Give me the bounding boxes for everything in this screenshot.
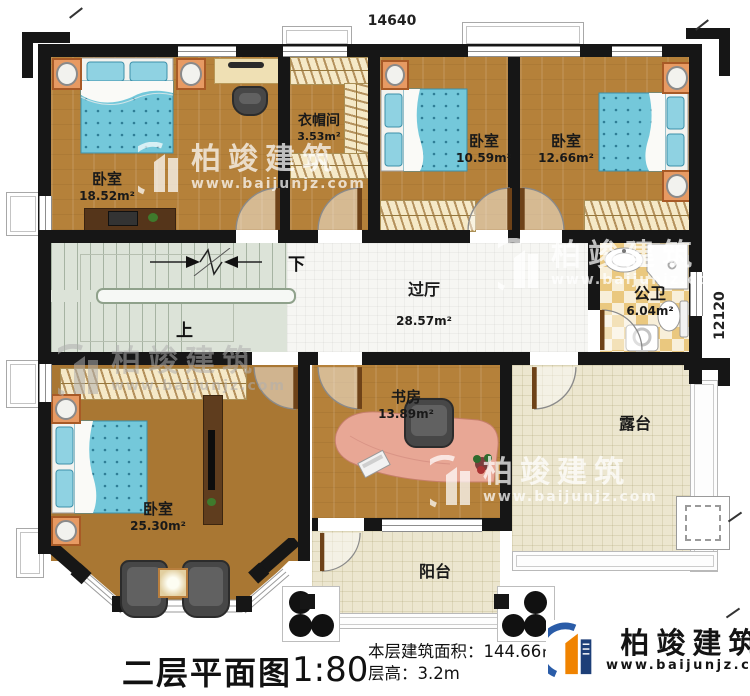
- brand-logo-url: www.baijunjz.com: [606, 658, 750, 673]
- nightstand: [662, 62, 692, 94]
- window: [178, 46, 236, 57]
- window: [612, 46, 662, 57]
- door: [320, 531, 362, 573]
- brand-logo-icon: [548, 622, 600, 678]
- nightstand: [176, 58, 206, 90]
- terrace-railing: [512, 551, 718, 571]
- wall: [362, 352, 530, 365]
- door: [316, 186, 362, 232]
- wall: [38, 352, 252, 365]
- room-label-study: 书房 13.89m²: [372, 386, 440, 421]
- wardrobe: [380, 200, 476, 232]
- brand-logo-name: 柏竣建筑: [620, 628, 750, 658]
- floor-plan: 14640 12120 下 上: [0, 0, 750, 696]
- nightstand: [52, 58, 82, 90]
- armchair: [182, 560, 230, 618]
- dimension-tick: [69, 7, 83, 18]
- room-label-cloakroom: 衣帽间 3.53m²: [284, 110, 354, 143]
- wall: [298, 365, 310, 561]
- room-name: 露台: [619, 410, 651, 434]
- wall: [689, 44, 702, 384]
- area-note-label: 本层建筑面积：: [368, 642, 484, 661]
- room-name: 卧室: [143, 498, 173, 519]
- top-dimension-label: 14640: [362, 13, 422, 29]
- tv-icon: [208, 430, 215, 490]
- area-note: 本层建筑面积：144.66㎡: [368, 641, 558, 663]
- room-label-hall: 过厅 28.57m²: [386, 276, 462, 328]
- room-name: 公卫: [634, 280, 666, 304]
- room-label-bedroom-tl: 卧室 18.52m²: [62, 168, 152, 203]
- side-table: [158, 568, 188, 598]
- height-note-label: 层高：: [368, 664, 418, 683]
- office-chair: [232, 86, 268, 116]
- room-name: 卧室: [551, 130, 581, 151]
- wall: [298, 352, 318, 365]
- desk-item: [228, 62, 264, 68]
- door: [520, 186, 566, 232]
- bed: [598, 92, 689, 172]
- room-area: 10.59m²: [456, 151, 512, 165]
- wall: [500, 365, 512, 531]
- column-marker: [676, 496, 730, 550]
- room-name: 衣帽间: [298, 110, 340, 130]
- window-sill: [6, 360, 40, 408]
- dimension-tick: [726, 608, 740, 619]
- room-label-bedroom-bl: 卧室 25.30m²: [124, 498, 192, 533]
- wall: [368, 44, 380, 243]
- room-area: 25.30m²: [130, 519, 186, 533]
- bed: [80, 57, 174, 154]
- right-dimension-label: 12120: [712, 268, 728, 340]
- window: [382, 519, 482, 532]
- wall: [578, 352, 702, 365]
- laptop-icon: [108, 211, 138, 226]
- room-name: 卧室: [92, 168, 122, 189]
- stair-break-icon: [150, 248, 262, 276]
- room-area: 12.66m²: [538, 151, 594, 165]
- wall: [588, 243, 600, 310]
- door: [252, 365, 298, 411]
- plant-icon: [148, 213, 158, 222]
- room-name: 卧室: [469, 130, 499, 151]
- nightstand: [381, 60, 409, 90]
- nightstand: [662, 170, 692, 202]
- room-area: 13.89m²: [378, 407, 434, 421]
- brand-logo: 柏竣建筑 www.baijunjz.com: [546, 620, 750, 680]
- room-label-bedroom-tr: 卧室 12.66m²: [534, 130, 598, 165]
- wall: [38, 44, 51, 554]
- room-area: 6.04m²: [626, 304, 673, 318]
- wardrobe: [584, 200, 691, 232]
- door: [532, 365, 578, 411]
- window: [690, 272, 703, 316]
- wall: [22, 32, 33, 78]
- wall: [312, 518, 318, 531]
- wall: [300, 594, 315, 609]
- room-name: 阳台: [419, 558, 451, 582]
- room-label-balcony: 阳台: [402, 558, 468, 582]
- nightstand: [51, 394, 81, 424]
- wardrobe: [290, 57, 370, 85]
- plan-notes: 本层建筑面积：144.66㎡ 层高：3.2m: [368, 641, 558, 685]
- window: [283, 46, 347, 57]
- window: [39, 364, 52, 402]
- height-note: 层高：3.2m: [368, 663, 558, 685]
- stair-railing: [96, 288, 296, 304]
- window-sill: [6, 192, 40, 236]
- nightstand: [51, 516, 81, 546]
- room-area: 3.53m²: [297, 130, 340, 143]
- room-label-terrace: 露台: [602, 410, 668, 434]
- room-area: 18.52m²: [79, 189, 135, 203]
- stairs-down-label: 下: [288, 250, 305, 275]
- wall: [719, 28, 730, 76]
- window: [39, 196, 52, 230]
- door: [466, 186, 512, 232]
- plan-scale: 1:80: [292, 650, 368, 690]
- stairs-up-label: 上: [176, 316, 193, 341]
- wall: [38, 230, 236, 243]
- window: [468, 46, 580, 57]
- wardrobe: [290, 153, 370, 179]
- dimension-tick: [728, 512, 742, 523]
- room-name: 书房: [391, 386, 421, 407]
- room-area: 28.57m²: [396, 314, 452, 328]
- door: [316, 365, 362, 411]
- room-label-bathroom: 公卫 6.04m²: [616, 280, 684, 318]
- plan-title: 二层平面图: [114, 648, 300, 696]
- door: [234, 186, 280, 232]
- plant-icon: [207, 498, 216, 506]
- room-name: 过厅: [408, 276, 440, 300]
- wall: [494, 594, 509, 609]
- height-note-value: 3.2m: [418, 664, 460, 683]
- wall: [718, 358, 730, 386]
- room-label-bedroom-tm: 卧室 10.59m²: [452, 130, 516, 165]
- wall: [562, 230, 702, 243]
